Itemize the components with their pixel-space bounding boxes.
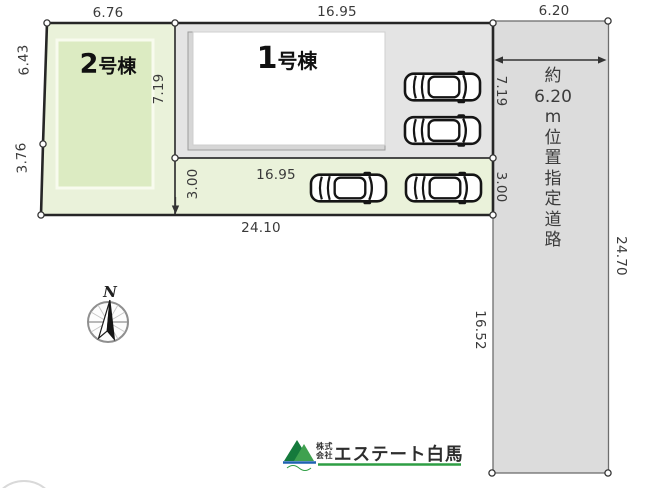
dim-left-lower: 3.76 bbox=[13, 142, 31, 174]
building-1-suffix: 号棟 bbox=[277, 51, 317, 71]
dim-top-road: 6.20 bbox=[539, 3, 570, 19]
building-2-number: 2 bbox=[80, 51, 99, 78]
company-name: エステート白馬 bbox=[334, 441, 464, 466]
building-1-label: 1号棟 bbox=[257, 44, 318, 74]
company-prefix-bottom: 会社 bbox=[316, 452, 333, 461]
dim-top-lot1: 16.95 bbox=[317, 4, 357, 20]
dim-right-vertical: 7.19 bbox=[493, 76, 509, 107]
company-prefix: 株式 会社 bbox=[316, 443, 333, 460]
car-top-view-icon bbox=[406, 172, 481, 205]
car-top-view-icon bbox=[405, 71, 480, 104]
watermark-arc bbox=[0, 481, 57, 488]
road-label-char: 指 bbox=[544, 169, 561, 190]
road-label-char: 位 bbox=[544, 128, 561, 149]
dim-road-left-length: 16.52 bbox=[472, 310, 488, 350]
building-2-label: 2号棟 bbox=[80, 51, 137, 78]
road-designation-label: 約 6.20 m 位 置 指 定 道 路 bbox=[534, 66, 572, 251]
dim-inner-strip: 3.00 bbox=[185, 169, 201, 200]
road-label-char: 置 bbox=[544, 148, 561, 169]
dim-strip-width: 16.95 bbox=[256, 167, 296, 183]
north-label: N bbox=[103, 283, 117, 301]
compass-north-icon bbox=[88, 299, 128, 342]
car-top-view-icon bbox=[405, 114, 480, 147]
road-label-char: 定 bbox=[544, 189, 561, 210]
road-label-char: 約 bbox=[544, 66, 561, 87]
dim-inner-vertical: 7.19 bbox=[151, 74, 167, 105]
road-label-char: 路 bbox=[544, 230, 561, 251]
dim-left-upper: 6.43 bbox=[15, 44, 33, 76]
dim-right-strip: 3.00 bbox=[493, 172, 509, 203]
building-2-suffix: 号棟 bbox=[98, 58, 136, 77]
building-1-number: 1 bbox=[257, 44, 278, 74]
dim-bottom-width: 24.10 bbox=[241, 220, 281, 236]
site-plan-image: 6.76 16.95 6.20 24.10 16.95 6.43 3.76 7.… bbox=[0, 0, 650, 488]
road-label-char: 6.20 bbox=[534, 87, 572, 108]
dim-road-right-length: 24.70 bbox=[613, 236, 629, 276]
car-top-view-icon bbox=[311, 172, 386, 205]
road-label-char: m bbox=[545, 107, 562, 128]
dim-top-lot2: 6.76 bbox=[93, 5, 124, 21]
road-label-char: 道 bbox=[544, 210, 561, 231]
